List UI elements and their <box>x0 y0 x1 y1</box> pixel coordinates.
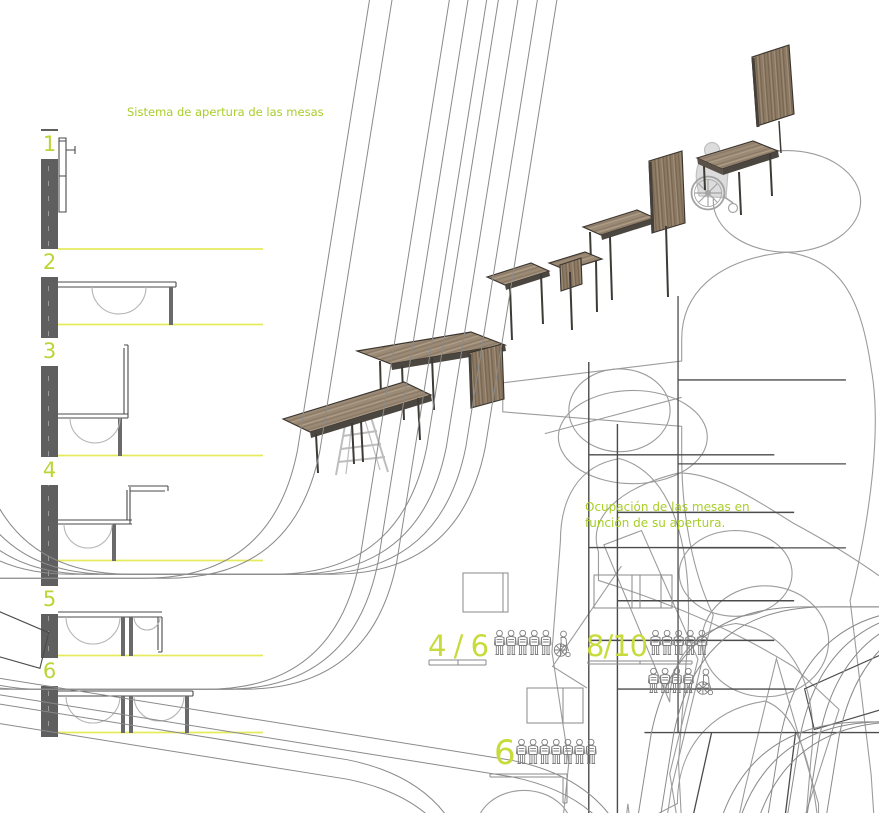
person-icon <box>494 630 504 654</box>
table-top-plan <box>463 573 508 612</box>
occupancy-title-line1: Ocupación de las mesas en <box>585 500 750 514</box>
person-icon <box>518 630 528 654</box>
design-panel-root: Sistema de apertura de las mesas 1 2 3 4… <box>0 0 879 813</box>
capacity-label-6: 6 <box>494 733 515 773</box>
step-number-6: 6 <box>41 658 58 685</box>
person-icon <box>528 739 538 763</box>
person-icon <box>516 739 526 763</box>
person-icon <box>551 739 561 763</box>
person-icon <box>529 630 539 654</box>
step-number-5: 5 <box>41 586 58 613</box>
capacity-label-4-6: 4 / 6 <box>428 629 488 663</box>
capacity-label-8-10: 8/10 <box>586 629 647 663</box>
illustration-layer <box>0 0 879 813</box>
step-number-1: 1 <box>41 131 58 158</box>
person-icon <box>540 739 550 763</box>
occupancy-title-line2: función de su apertura. <box>585 516 725 530</box>
table-top-plan <box>527 688 583 723</box>
step-number-4: 4 <box>41 457 58 484</box>
person-icon <box>586 739 596 763</box>
sequence-title: Sistema de apertura de las mesas <box>127 105 324 119</box>
step-number-2: 2 <box>41 249 58 276</box>
person-icon <box>506 630 516 654</box>
chair-icon <box>0 0 498 689</box>
person-icon <box>541 630 551 654</box>
person-icon <box>674 630 684 654</box>
person-icon <box>650 630 660 654</box>
step-number-3: 3 <box>41 338 58 365</box>
person-icon <box>574 739 584 763</box>
occupants-row <box>494 630 570 656</box>
person-icon <box>662 630 672 654</box>
occupants-row <box>516 739 596 763</box>
